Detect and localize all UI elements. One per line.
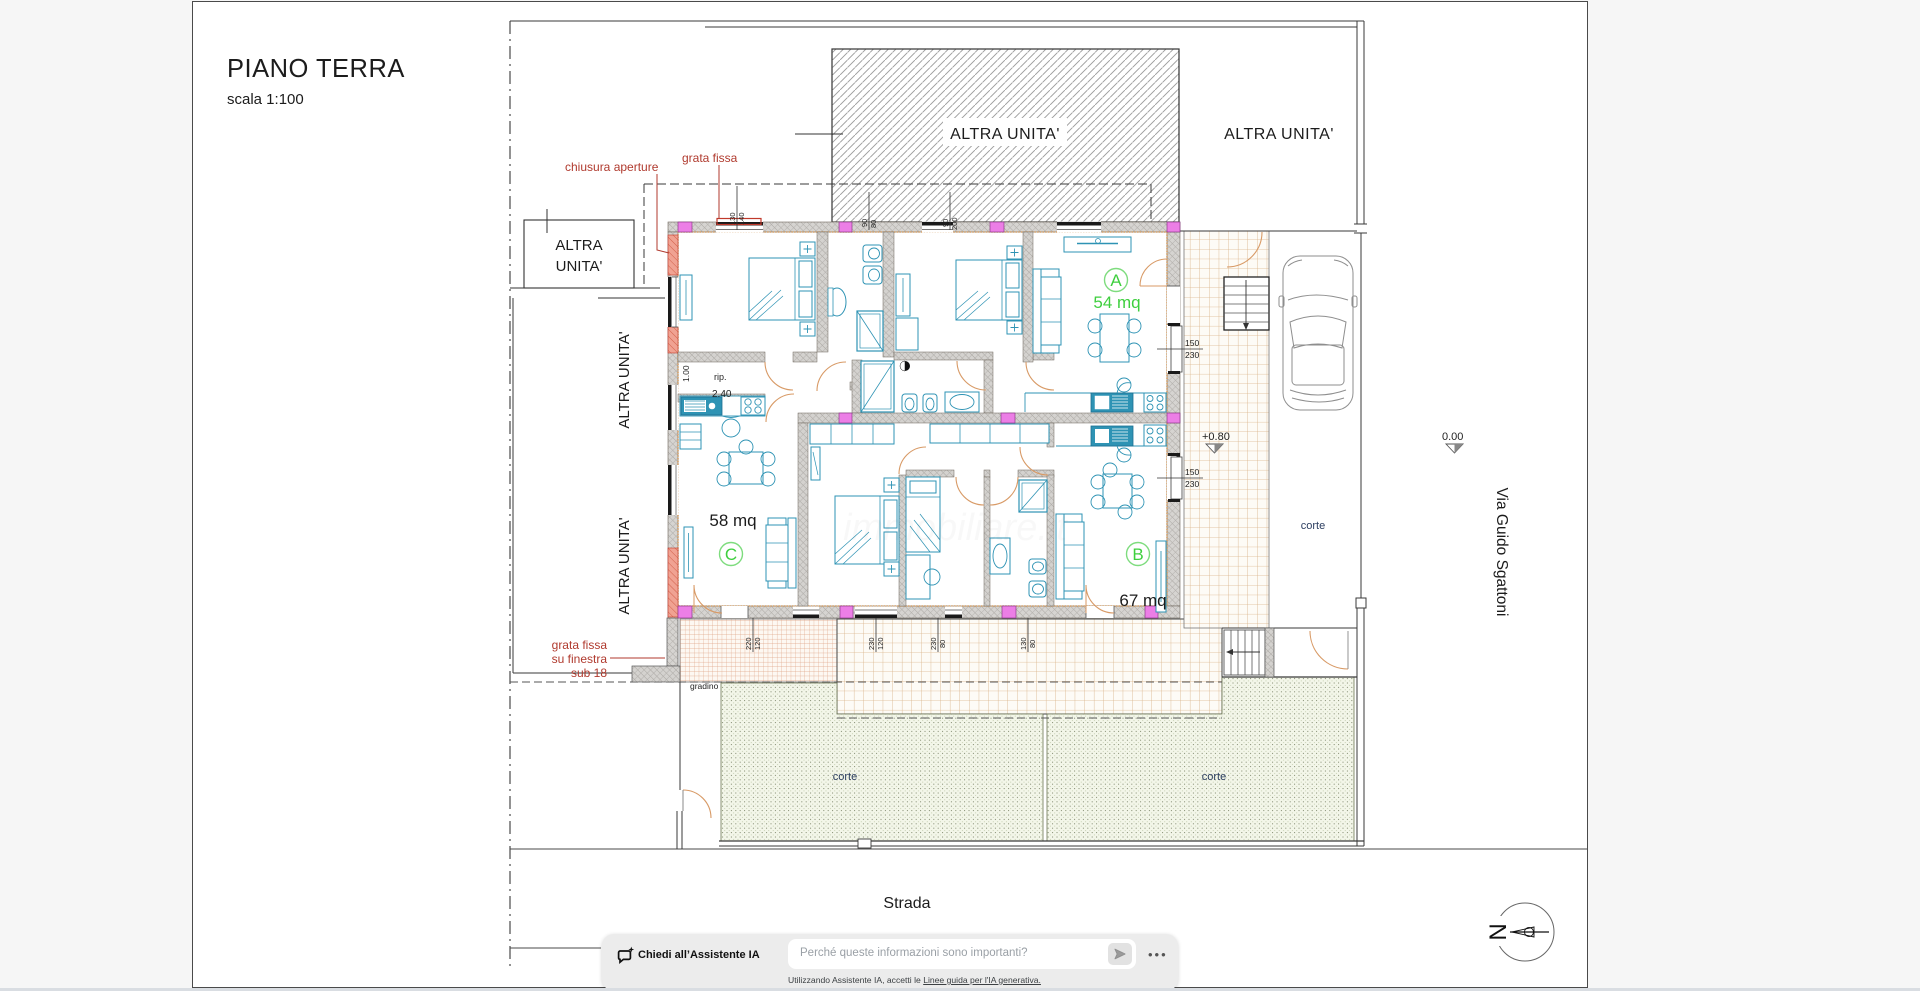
svg-text:sub 18: sub 18: [571, 666, 607, 680]
svg-text:chiusura aperture: chiusura aperture: [565, 160, 659, 174]
svg-text:1.00: 1.00: [681, 365, 691, 382]
svg-text:corte: corte: [833, 771, 857, 783]
svg-text:130: 130: [1019, 637, 1028, 650]
svg-text:230: 230: [929, 637, 938, 650]
svg-text:ALTRA UNITA': ALTRA UNITA': [1224, 126, 1334, 143]
svg-text:200: 200: [950, 217, 959, 230]
svg-text:N: N: [1485, 923, 1512, 940]
svg-text:54 mq: 54 mq: [1093, 293, 1140, 312]
svg-text:immobiliare.it: immobiliare.it: [843, 507, 1068, 549]
svg-text:ALTRA: ALTRA: [555, 237, 602, 254]
svg-text:rip.: rip.: [714, 372, 727, 382]
svg-text:80: 80: [1028, 640, 1037, 648]
svg-text:UNITA': UNITA': [556, 258, 603, 275]
svg-text:A: A: [1110, 271, 1122, 290]
svg-text:grata fissa: grata fissa: [552, 638, 608, 652]
svg-text:130: 130: [728, 212, 737, 225]
svg-text:ALTRA UNITA': ALTRA UNITA': [616, 517, 633, 614]
svg-text:67 mq: 67 mq: [1119, 591, 1166, 610]
svg-text:80: 80: [869, 220, 878, 228]
svg-text:grata fissa: grata fissa: [682, 151, 738, 165]
svg-text:2.40: 2.40: [712, 389, 732, 400]
svg-text:+0.80: +0.80: [1202, 431, 1230, 443]
svg-text:90: 90: [860, 219, 869, 227]
svg-text:ALTRA UNITA': ALTRA UNITA': [950, 126, 1060, 143]
svg-text:150: 150: [1185, 467, 1199, 477]
svg-text:gradino: gradino: [690, 681, 719, 691]
svg-text:230: 230: [867, 637, 876, 650]
svg-text:120: 120: [876, 637, 885, 650]
svg-text:su finestra: su finestra: [552, 652, 608, 666]
svg-text:C: C: [725, 545, 737, 564]
svg-text:B: B: [1132, 545, 1143, 564]
svg-text:scala 1:100: scala 1:100: [227, 91, 304, 108]
svg-text:220: 220: [744, 637, 753, 650]
svg-text:120: 120: [753, 637, 762, 650]
svg-text:80: 80: [938, 640, 947, 648]
svg-text:0.00: 0.00: [1442, 431, 1463, 443]
svg-text:140: 140: [737, 212, 746, 225]
svg-text:58 mq: 58 mq: [709, 511, 756, 530]
svg-text:ALTRA UNITA': ALTRA UNITA': [616, 331, 633, 428]
svg-text:corte: corte: [1202, 771, 1226, 783]
svg-text:230: 230: [1185, 350, 1199, 360]
svg-text:corte: corte: [1301, 520, 1325, 532]
svg-text:PIANO TERRA: PIANO TERRA: [227, 55, 405, 83]
svg-text:150: 150: [1185, 338, 1199, 348]
svg-text:90: 90: [941, 219, 950, 227]
svg-text:Via Guido Sgattoni: Via Guido Sgattoni: [1493, 488, 1510, 617]
svg-text:230: 230: [1185, 479, 1199, 489]
svg-text:Strada: Strada: [883, 895, 930, 912]
